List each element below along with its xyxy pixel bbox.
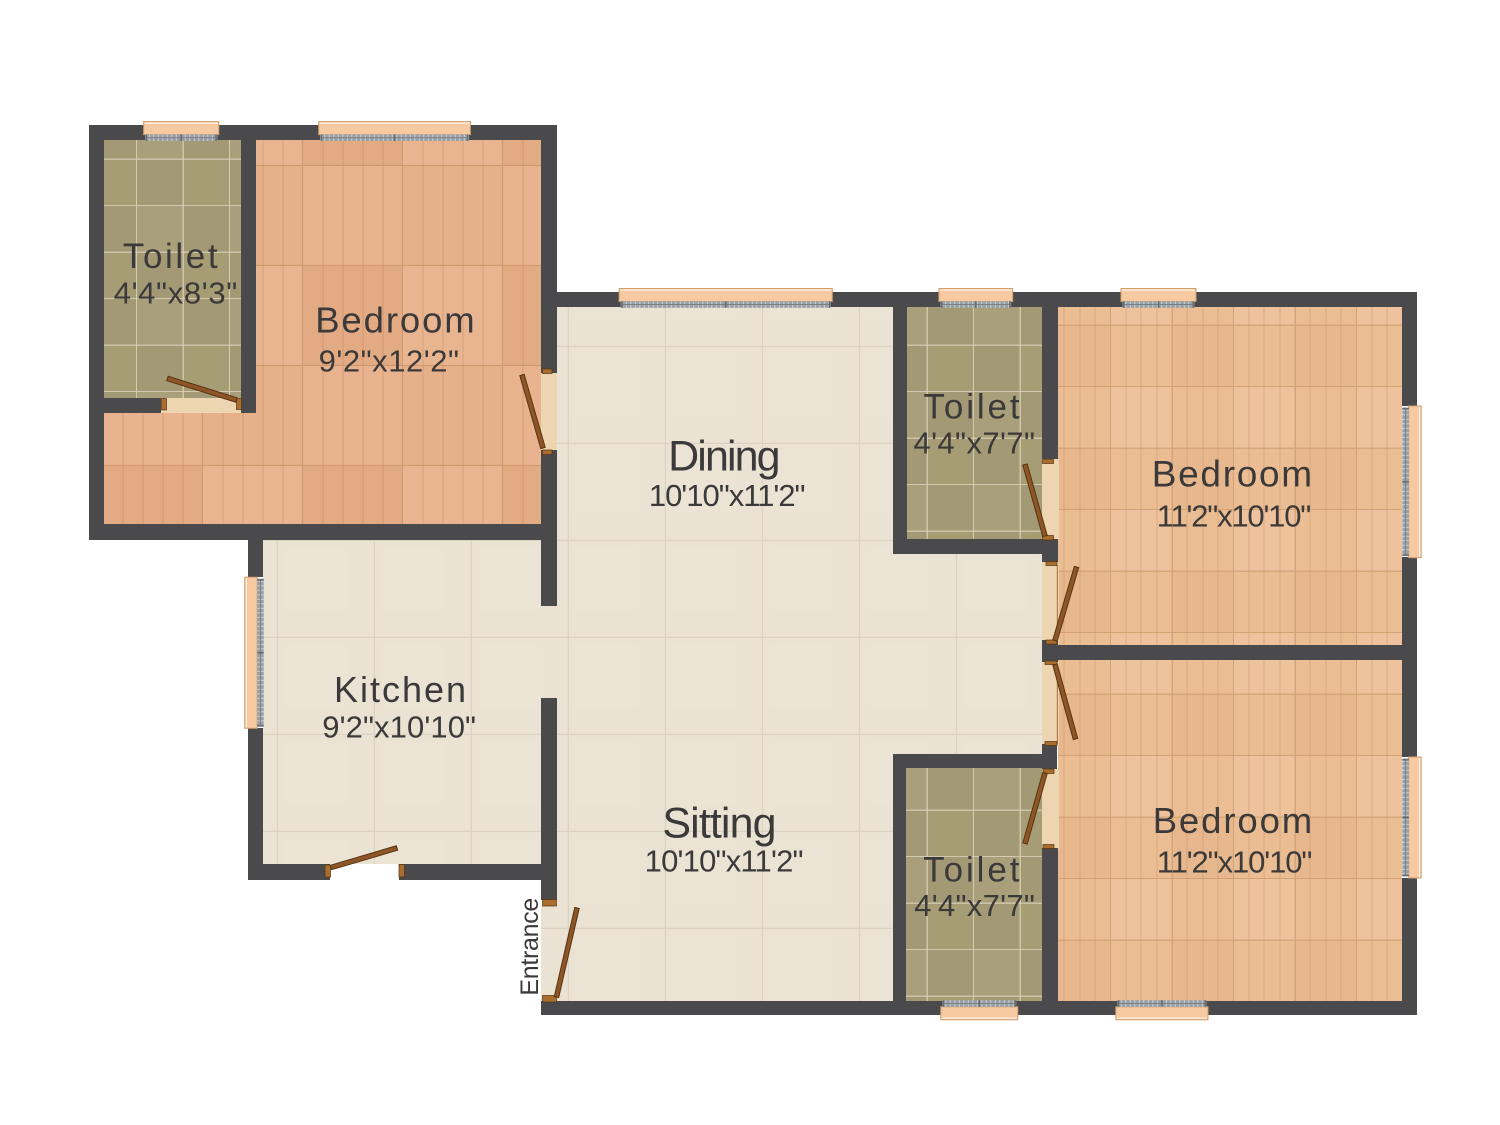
svg-text:4'4"x7'7": 4'4"x7'7" [914,888,1035,923]
svg-text:10'10"x11'2": 10'10"x11'2" [645,844,803,879]
svg-text:Entrance: Entrance [516,898,544,996]
svg-text:9'2"x12'2": 9'2"x12'2" [319,344,460,379]
svg-text:Bedroom: Bedroom [315,299,476,340]
svg-text:Sitting: Sitting [662,799,775,847]
svg-text:11'2"x10'10": 11'2"x10'10" [1157,844,1312,879]
svg-text:Bedroom: Bedroom [1152,454,1314,495]
svg-text:Toilet: Toilet [923,387,1022,426]
svg-text:4'4"x8'3": 4'4"x8'3" [114,275,238,310]
svg-text:4'4"x7'7": 4'4"x7'7" [913,426,1035,461]
svg-text:Dining: Dining [668,433,779,481]
svg-text:11'2"x10'10": 11'2"x10'10" [1157,499,1311,534]
svg-text:Toilet: Toilet [923,851,1022,890]
svg-text:9'2"x10'10": 9'2"x10'10" [322,709,476,744]
svg-text:10'10"x11'2": 10'10"x11'2" [649,478,805,513]
svg-text:Toilet: Toilet [123,237,220,276]
svg-text:Kitchen: Kitchen [334,669,468,710]
svg-text:Bedroom: Bedroom [1153,800,1314,841]
